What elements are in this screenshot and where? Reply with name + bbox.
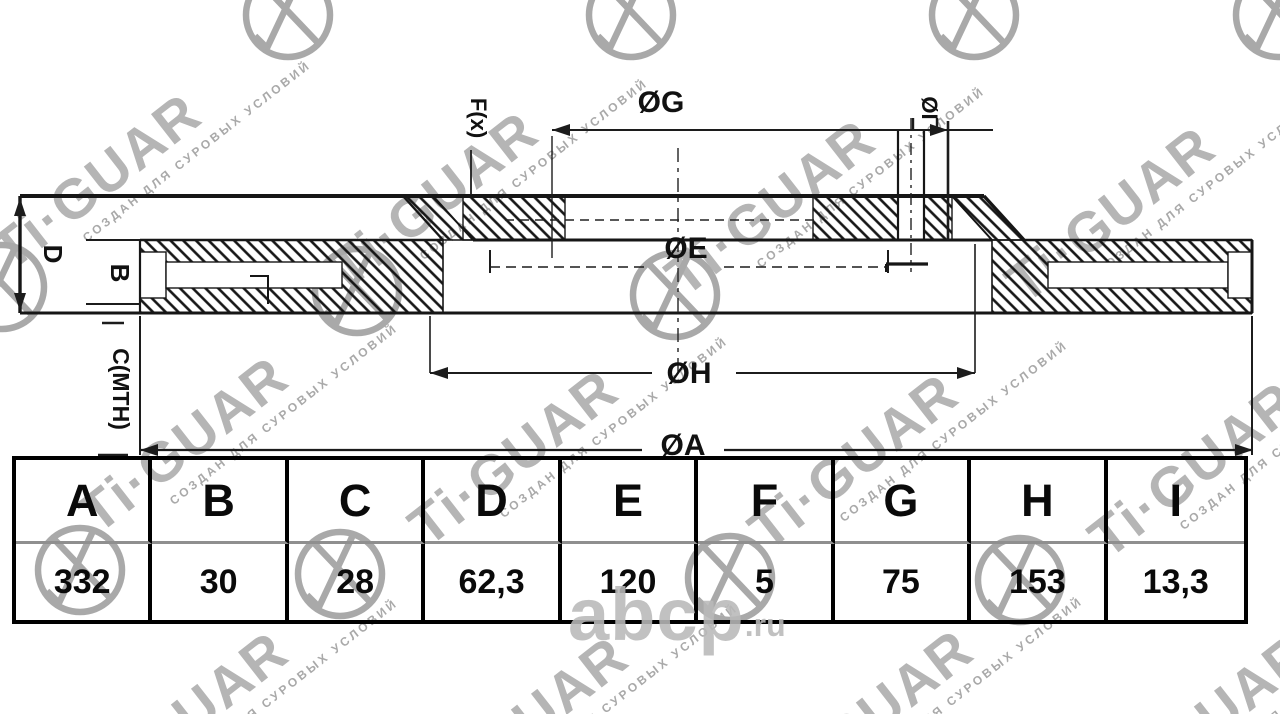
technical-drawing: ØG ØI F(x) ØE ØH ØA B C(MTH) D — [0, 0, 1280, 456]
dim-label-C: C(MTH) — [108, 348, 134, 430]
table-value-B: 30 — [152, 544, 288, 620]
table-header-I: I — [1108, 460, 1244, 544]
table-value-A: 332 — [16, 544, 152, 620]
dim-label-A: ØA — [661, 429, 706, 456]
table-value-H: 153 — [971, 544, 1107, 620]
table-value-C: 28 — [289, 544, 425, 620]
dim-label-B: B — [105, 264, 135, 283]
table-header-F: F — [698, 460, 834, 544]
table-header-B: B — [152, 460, 288, 544]
site-watermark: abcp.ru — [568, 578, 786, 652]
table-header-C: C — [289, 460, 425, 544]
table-header-H: H — [971, 460, 1107, 544]
dim-label-D: D — [38, 245, 68, 264]
dim-label-G: ØG — [638, 86, 685, 119]
table-value-I: 13,3 — [1108, 544, 1244, 620]
table-header-G: G — [835, 460, 971, 544]
dim-label-I: ØI — [917, 96, 942, 119]
site-watermark-name: abcp — [568, 573, 745, 656]
site-watermark-tld: .ru — [745, 609, 786, 641]
table-header-D: D — [425, 460, 561, 544]
dim-label-F: F(x) — [466, 98, 491, 138]
dim-label-H: ØH — [667, 357, 712, 390]
dim-label-E: ØE — [664, 232, 707, 265]
table-header-A: A — [16, 460, 152, 544]
table-value-G: 75 — [835, 544, 971, 620]
hidden-lines — [505, 118, 911, 372]
table-value-D: 62,3 — [425, 544, 561, 620]
brake-disc-diagram-page: Ti·GUAR СОЗДАН ДЛЯ СУРОВЫХ УСЛОВИЙ Ti·GU… — [0, 0, 1280, 714]
table-header-E: E — [562, 460, 698, 544]
